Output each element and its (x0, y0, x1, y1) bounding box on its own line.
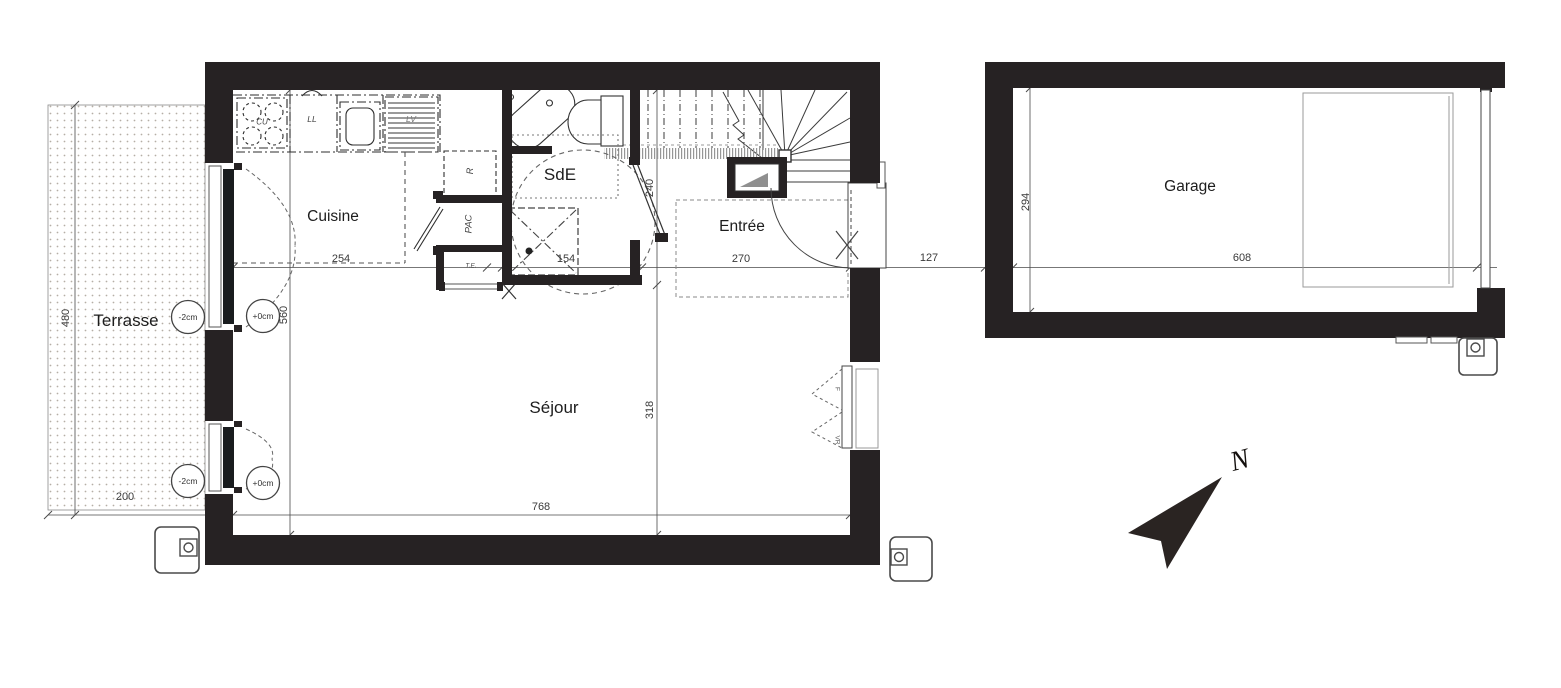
room-label-sejour: Séjour (529, 398, 578, 418)
dim-shower-width: 154 (557, 253, 575, 265)
french-door-frame (209, 166, 221, 327)
dim-entree-width: 270 (732, 253, 750, 265)
garage-fittings (1303, 90, 1490, 343)
wc-tank (601, 96, 623, 146)
plan-linework (0, 0, 1561, 688)
shutter-box (856, 369, 878, 448)
bathroom-fittings (499, 76, 665, 299)
car-outline (1303, 93, 1453, 287)
pac-door-leaf (414, 207, 440, 249)
north-arrow-icon (1128, 477, 1222, 569)
dim-sejour-height: 318 (644, 401, 656, 419)
te-threshold (445, 284, 497, 289)
appliance-label-washer: LL (307, 114, 316, 124)
room-label-cuisine: Cuisine (307, 208, 359, 226)
garage-door-panel (1481, 90, 1490, 288)
dim-garage-width: 608 (1233, 252, 1251, 264)
dim-garage-depth: 294 (1020, 193, 1032, 211)
entree-zone (676, 200, 848, 297)
level-marker-inner-lower: +0cm (252, 478, 273, 488)
dim-house-garage-gap: 127 (920, 252, 938, 264)
appliance-label-fridge: R (465, 168, 475, 175)
lower-window-frame (209, 424, 221, 491)
appliance-label-dishwasher: LV (406, 114, 416, 124)
dim-terrasse-height: 480 (60, 309, 72, 327)
appliance-label-cooktop: CU (256, 118, 268, 127)
staircase (604, 90, 850, 198)
level-marker-terrace-lower: -2cm (179, 476, 198, 486)
window-tag-vr: VR (834, 435, 841, 444)
front-door-panel (848, 183, 886, 268)
lower-window-glazing (223, 427, 234, 488)
french-door-glazing (223, 169, 234, 324)
floor-plan: Terrasse Cuisine SdE Entrée Séjour Garag… (0, 0, 1561, 688)
dim-sde-height: 240 (644, 179, 656, 197)
room-label-sde: SdE (544, 165, 576, 185)
appliance-label-heat-pump: PAC (464, 215, 475, 234)
room-label-garage: Garage (1164, 178, 1216, 196)
kitchen-fittings (233, 91, 496, 264)
sejour-window (812, 366, 878, 448)
room-label-entree: Entrée (719, 218, 765, 236)
level-marker-terrace-upper: -2cm (179, 312, 198, 322)
dim-interior-height: 560 (278, 306, 290, 324)
dim-kitchen-width: 254 (332, 253, 350, 265)
shower-drain (526, 248, 533, 255)
window-tag-f: F (834, 387, 841, 391)
room-label-terrasse: Terrasse (93, 311, 158, 331)
level-marker-inner-upper: +0cm (252, 311, 273, 321)
vent-mark (1396, 337, 1427, 343)
dim-terrasse-width: 200 (116, 491, 134, 503)
dim-sejour-width: 768 (532, 501, 550, 513)
appliance-label-electrical-panel: T.E. (465, 263, 476, 270)
vent-mark (1431, 337, 1457, 343)
